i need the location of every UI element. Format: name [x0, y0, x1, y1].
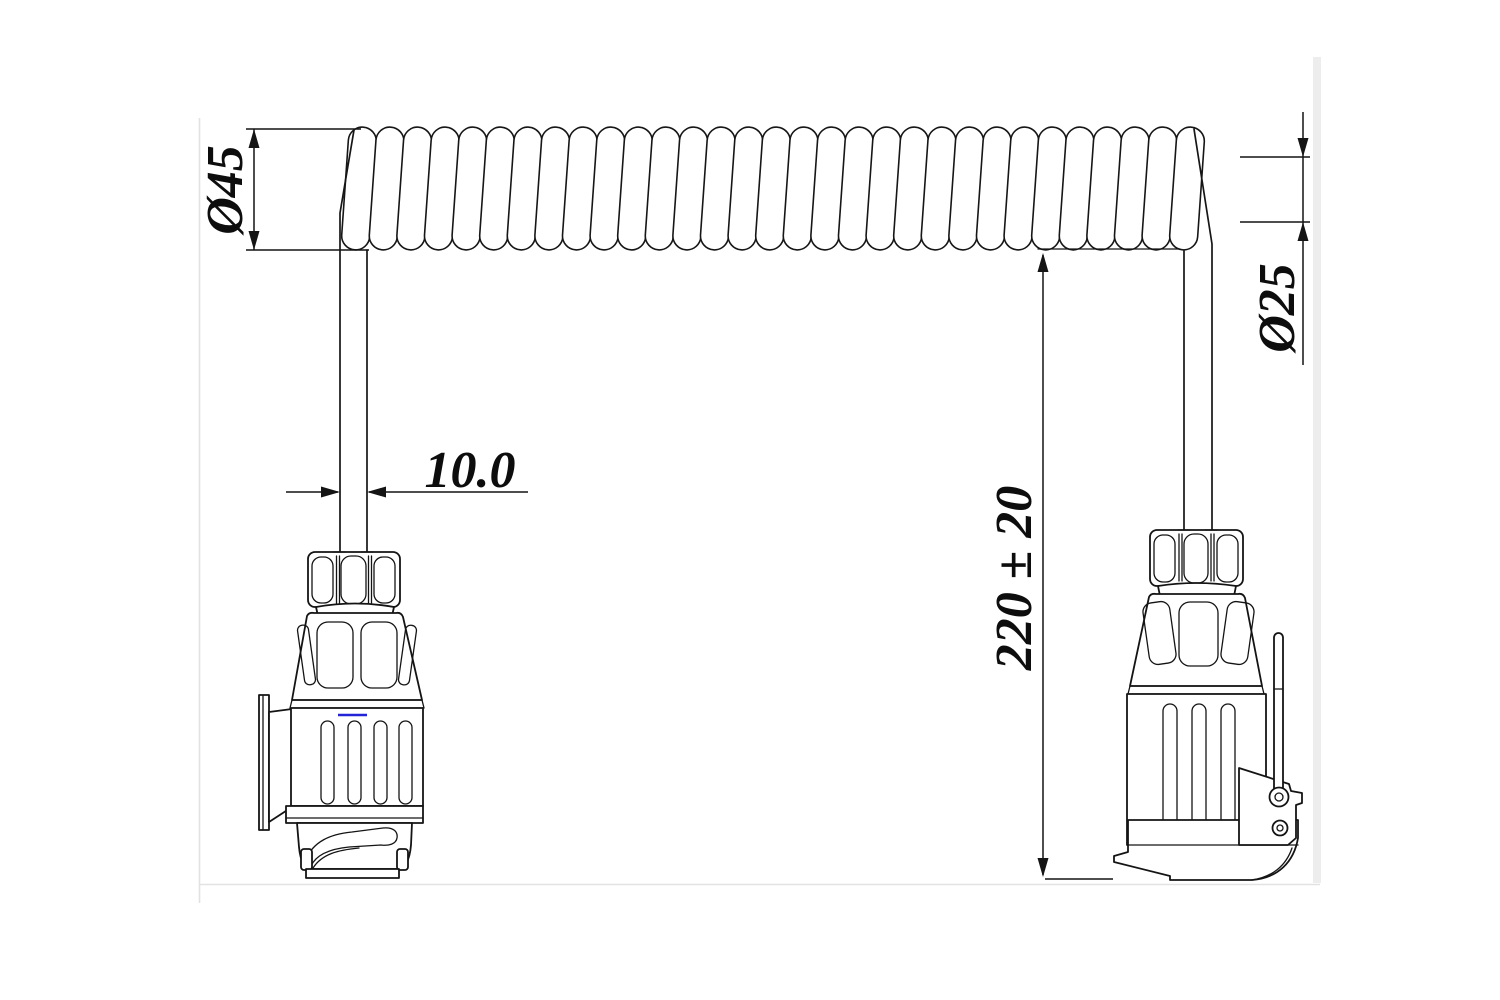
left-foot [301, 849, 312, 870]
right-connector-bracket [1239, 768, 1302, 845]
lever-pivot-screw [1270, 788, 1289, 807]
left-connector-body [291, 708, 423, 806]
technical-drawing-page: Ø45 10.0 220 ± 20 Ø25 [0, 0, 1500, 1000]
dim-label-cable-diameter: 10.0 [425, 442, 516, 499]
left-separator-band [290, 700, 424, 708]
left-cable-gland-nut [308, 552, 400, 619]
bracket-screw [1273, 821, 1288, 836]
left-connector-base [286, 806, 423, 878]
lever-rod [1274, 633, 1283, 800]
dimension-coiled-length: 220 ± 20 [986, 253, 1113, 879]
left-strain-relief [290, 613, 424, 708]
right-foot [397, 849, 408, 870]
coiled-cable [341, 126, 1206, 251]
spiral-cable-drawing: Ø45 10.0 220 ± 20 Ø25 [0, 0, 1500, 1000]
right-strain-relief [1128, 594, 1264, 694]
left-bottom-rim [306, 869, 399, 878]
right-connector [1114, 530, 1302, 880]
dim-label-inner-diameter: Ø25 [1249, 263, 1306, 354]
dimension-coil-inner-diameter: Ø25 [1240, 112, 1310, 365]
left-connector [259, 552, 424, 878]
dimension-cable-diameter: 10.0 [286, 442, 528, 499]
right-separator-band [1128, 686, 1264, 694]
page-edge-right [1313, 57, 1321, 883]
right-cable-gland-nut [1150, 530, 1243, 599]
dim-label-outer-diameter: Ø45 [197, 145, 254, 236]
dim-label-coiled-length: 220 ± 20 [986, 486, 1043, 672]
